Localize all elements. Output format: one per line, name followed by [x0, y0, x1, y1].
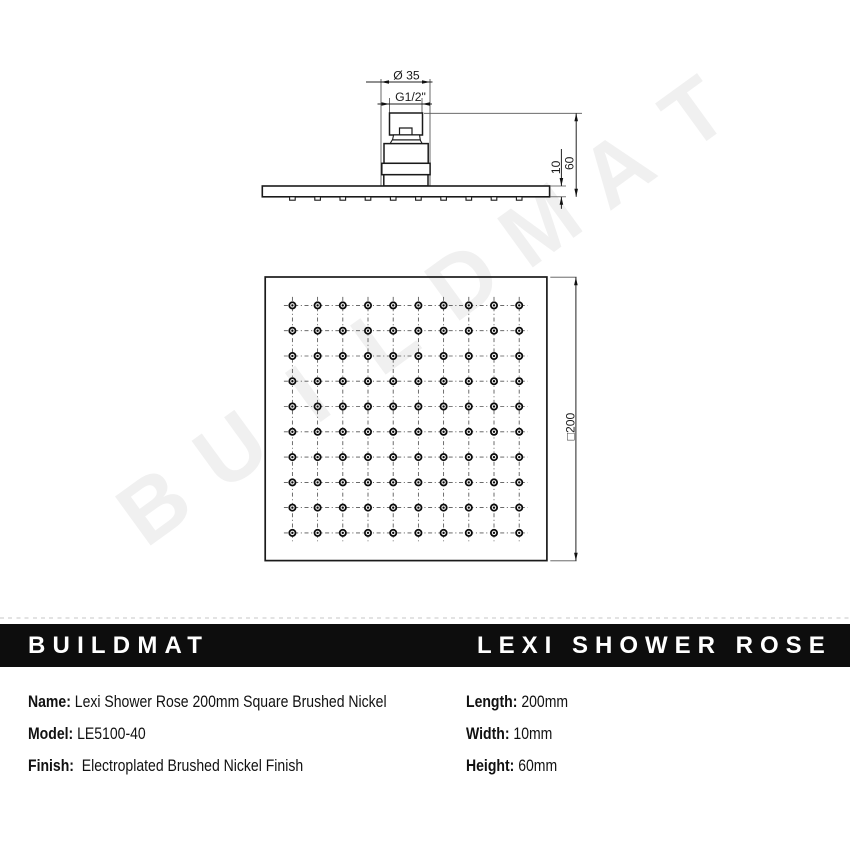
- svg-text:60: 60: [563, 156, 577, 170]
- svg-text:G1/2": G1/2": [395, 90, 426, 104]
- svg-text:Ø 35: Ø 35: [393, 68, 420, 82]
- svg-text:□200: □200: [563, 412, 577, 440]
- svg-text:10: 10: [549, 160, 563, 174]
